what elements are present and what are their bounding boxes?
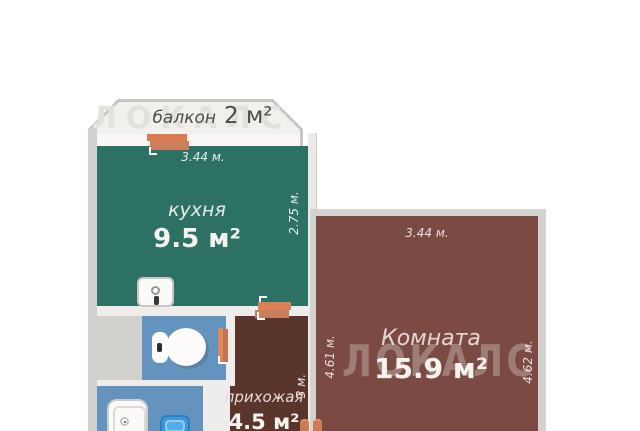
washbasin-rim [165,420,185,431]
door-leaf [258,302,291,310]
kitchen-sink-icon [137,277,174,307]
hallway-name: прихожая [204,388,324,406]
shaft-block [97,316,142,382]
outer-wall-left [88,128,97,431]
washbasin-icon [160,415,190,431]
balcony-label: балкон 2 м² [125,103,300,135]
floorplan: ЛОКАЛС балкон 2 м² [0,0,640,431]
toilet-flush-slot [157,343,162,352]
balcony-area: 2 м² [224,103,273,129]
drain-dot [124,421,127,424]
kitchen-depth-dim: 2.75 м. [287,180,301,246]
toilet-tank [152,332,168,363]
door-swing-mark [257,312,265,320]
door-leaf [147,134,187,141]
room-width-dim: 3.44 м. [392,226,462,240]
living-room-name: Комната [341,326,521,351]
sink-drain [151,286,160,295]
toilet-icon [166,328,206,366]
balcony-name: балкон [152,108,216,128]
wc-door [218,328,228,363]
hallway-area: 4.5 м² [204,410,324,431]
kitchen-hallway-door [255,296,291,320]
door-swing-mark [218,356,226,364]
bathtub-rim [113,406,146,431]
living-room-area: 15.9 м² [331,352,531,385]
bathtub-icon [107,399,148,431]
balcony-kitchen-wall [92,134,300,146]
room-living [316,216,538,431]
kitchen-area: 9.5 м² [116,224,278,254]
kitchen-name: кухня [136,199,258,221]
bathtub-drain [120,417,129,426]
door-swing-mark [149,147,157,155]
kitchen-width-dim: 3.44 м. [168,150,238,164]
sink-tap [154,296,159,305]
washbasin-bowl [167,422,183,430]
